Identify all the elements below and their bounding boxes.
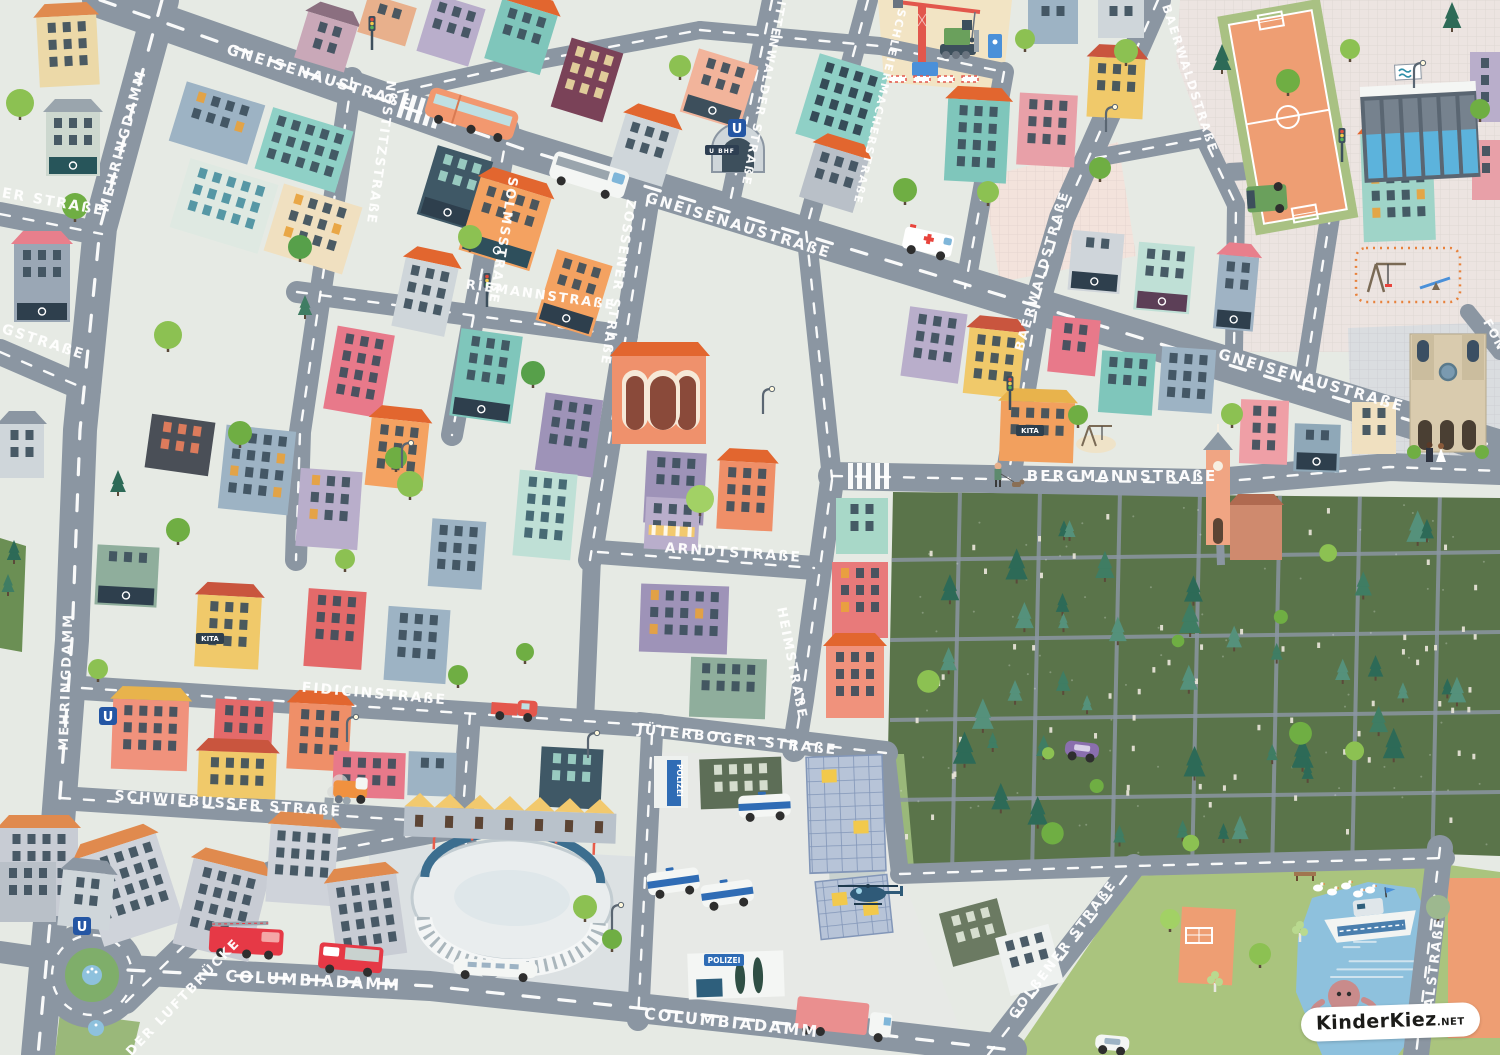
building [689,657,767,720]
building [428,518,487,590]
building [1098,350,1156,416]
gravestone [1327,508,1330,514]
svg-text:U: U [103,710,114,725]
small-playground [1076,426,1116,453]
building [145,414,216,476]
building [1067,230,1124,294]
gravestone [1468,687,1471,693]
gravestone [1257,725,1260,731]
fountain [88,1020,104,1036]
gravestone [972,545,975,551]
building [383,606,450,684]
gravestone [1451,708,1454,714]
gravestone [1467,707,1470,713]
gravestone [1368,757,1371,763]
gravestone [1290,718,1293,724]
round-tree [166,518,190,545]
street-zossener-south-road [585,558,592,722]
round-tree [154,321,182,352]
gravestone [1200,644,1203,650]
map-poster: GNEISENAUSTRAßEGNEISENAUSTRAßEGNEISENAUS… [0,0,1500,1055]
market-hall [610,342,710,444]
gravestone [1403,635,1406,641]
gravestone [1138,689,1141,695]
u-bahn-sign: U [728,119,746,137]
gravestone [1449,817,1452,823]
round-tree [1319,544,1337,562]
gravestone [1234,774,1237,780]
building [449,328,523,424]
gravestone [984,569,987,575]
delivery-truck [1246,182,1288,216]
round-tree [1041,822,1063,844]
building [823,633,887,718]
gravestone [1160,625,1163,631]
gravestone [1462,626,1465,632]
svg-text:U BHF: U BHF [709,148,735,155]
gravestone [1209,802,1212,808]
building [639,583,729,654]
building [194,738,280,800]
building [264,184,363,275]
round-tree [1015,29,1035,52]
round-tree [6,89,34,120]
building [1028,0,1078,44]
gravestone [1282,646,1285,652]
gravestone [1402,649,1405,655]
building [1095,0,1147,38]
gravestone [1049,727,1052,733]
gravestone [1372,701,1375,707]
round-tree [521,361,545,388]
gravestone [1073,553,1076,559]
round-tree [1182,835,1199,852]
svg-text:KITA: KITA [1021,427,1039,435]
gravestone [1106,514,1109,520]
round-tree [669,55,691,80]
round-tree [1221,403,1243,428]
gravestone [916,718,919,724]
round-tree [335,549,355,572]
svg-text:POLIZEI: POLIZEI [675,764,684,797]
gravestone [1168,660,1171,666]
building [1158,346,1216,414]
gravestone [1438,701,1441,707]
building [416,0,485,67]
gravestone [1425,646,1428,652]
attribution-text: KinderKiez [1316,1008,1438,1034]
building [512,470,577,561]
gravestone [1152,667,1155,673]
map-canvas: GNEISENAUSTRAßEGNEISENAUSTRAßEGNEISENAUS… [0,0,1500,1055]
building [900,306,967,383]
round-tree [1042,747,1054,759]
u-bahn-sign: U [99,707,117,725]
gravestone [1472,754,1475,760]
building [357,0,417,46]
gravestone [1444,545,1447,551]
gravestone [1317,643,1320,649]
gravestone [1434,645,1437,651]
gravestone [1474,634,1477,640]
gravestone [1195,679,1198,685]
round-tree [893,178,917,205]
building [43,99,103,176]
gravestone [1458,750,1461,756]
building [713,447,779,531]
svg-text:KITA: KITA [201,635,219,643]
gravestone [905,834,908,840]
roundabout-fountain [82,965,102,985]
gravestone [1109,693,1112,699]
u-bahn-sign: U [73,917,91,935]
attribution-logo: KinderKiez.NET [1301,1002,1481,1042]
gravestone [1038,536,1041,542]
solar-hall [815,874,893,939]
gravestone [1127,785,1130,791]
gravestone [1094,733,1097,739]
building [169,81,266,164]
gravestone [1427,560,1430,566]
round-tree [448,665,468,688]
building [1293,423,1341,473]
building [0,862,56,922]
solar-hall [806,755,886,874]
gravestone [1133,715,1136,721]
building [1133,242,1195,315]
gravestone [1416,660,1419,666]
gothic-church [1407,334,1489,459]
round-tree [1289,722,1312,745]
gravestone [1013,644,1016,650]
round-tree [1345,741,1364,760]
street-label-bergmannstrasse: BERGMANNSTRAßE [1027,467,1217,485]
gravestone [1358,731,1361,737]
building [832,562,888,638]
gravestone [1132,746,1135,752]
building [836,498,888,554]
building [303,588,366,670]
building [941,85,1014,183]
gravestone [1294,795,1297,801]
gravestone [1032,645,1035,651]
building [94,544,159,607]
attribution-suffix: .NET [1437,1016,1465,1028]
round-tree [1172,635,1185,648]
kita-sign: KITA [196,633,224,644]
building [11,231,73,322]
police-sign: POLIZEI [704,954,744,966]
building [535,392,603,477]
kita-sign: KITA [1016,425,1044,436]
gravestone [1126,790,1129,796]
gravestone [1240,629,1243,635]
svg-text:POLIZEI: POLIZEI [708,956,741,965]
mini-pitch [1178,907,1236,986]
gravestone [942,674,945,680]
building [1047,316,1101,377]
building [169,158,278,254]
svg-text:U: U [732,122,743,137]
round-tree [1274,610,1288,624]
round-tree [1090,779,1104,793]
building [0,411,47,478]
gravestone [952,773,955,779]
u-bahn-station-plate: U BHF [705,145,739,155]
building [33,1,103,87]
gravestone [1309,530,1312,536]
svg-text:U: U [77,920,88,935]
gravestone [1040,573,1043,579]
gravestone [1474,585,1477,591]
round-tree [397,471,423,500]
building [295,468,362,550]
building [1016,93,1078,168]
building [1239,399,1289,465]
gravestone [931,815,934,821]
round-tree [917,670,940,693]
round-tree [516,643,534,664]
street-lamp [763,386,775,414]
gravestone [1346,829,1349,835]
building [191,581,265,670]
building [407,751,457,797]
building [323,326,395,419]
building [108,686,193,772]
gravestone [1223,785,1226,791]
gravestone [930,551,933,557]
